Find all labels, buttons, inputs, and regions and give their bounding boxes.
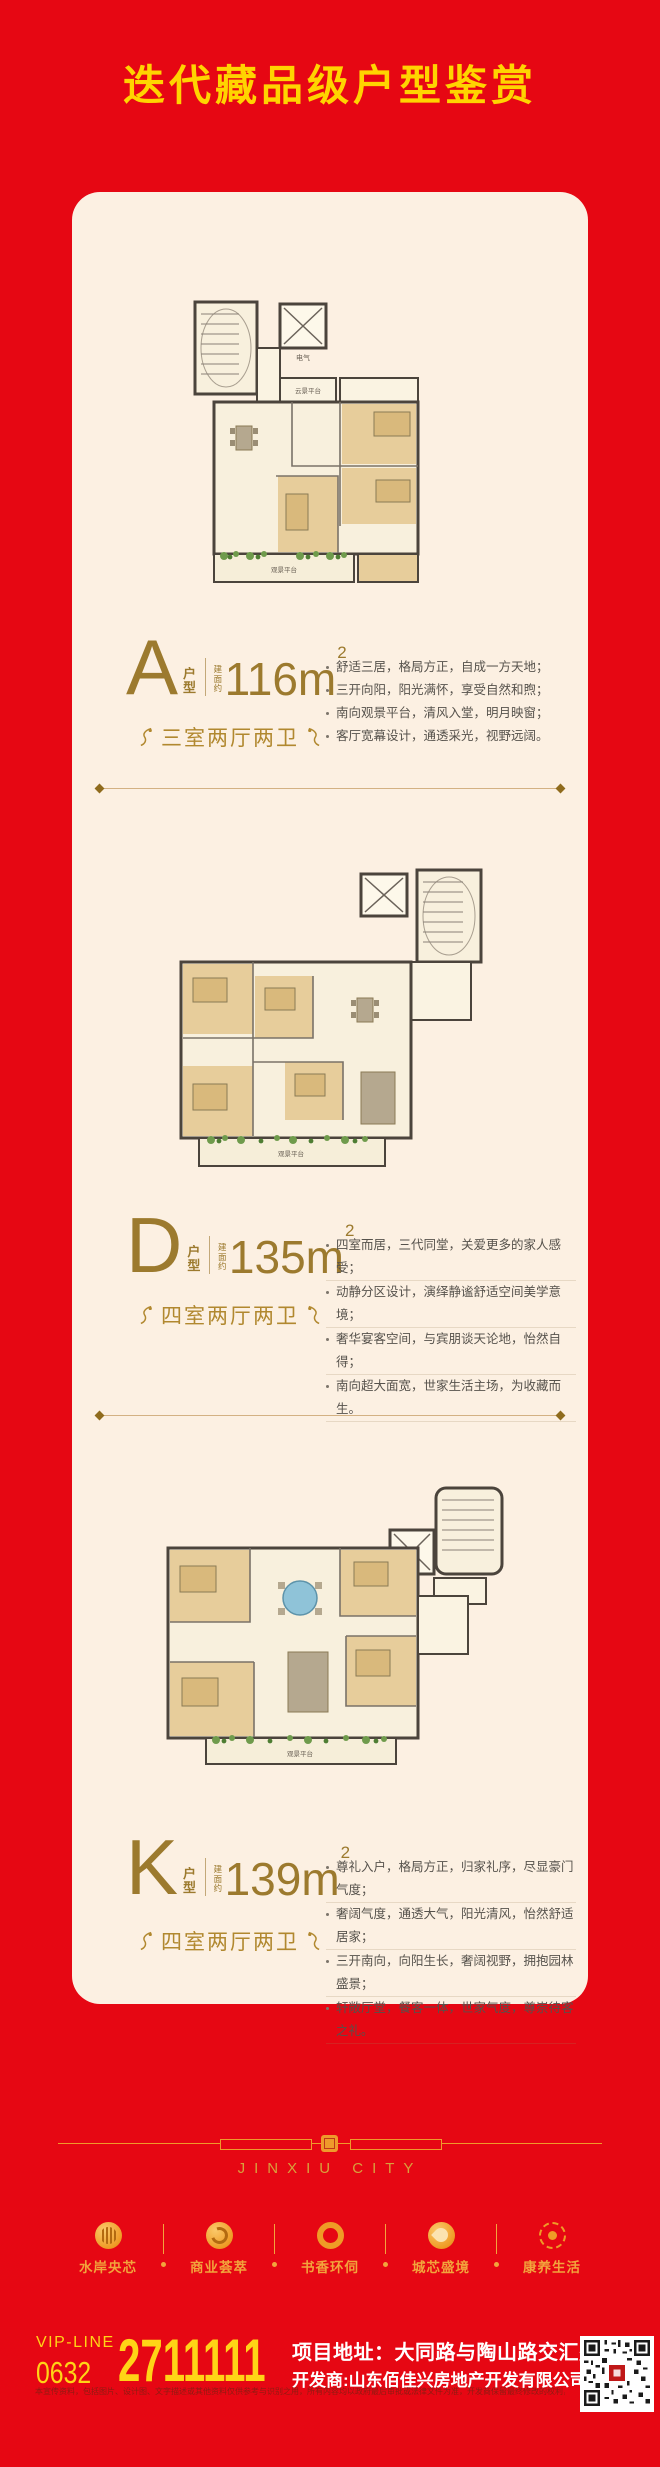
book-icon [317, 2222, 344, 2249]
phone-number: 2711111 [118, 2326, 266, 2395]
bullet-dot [326, 666, 329, 669]
feature-separator [274, 2224, 275, 2254]
feature-label: 水岸央芯 [67, 2256, 149, 2276]
floorplan-d-image: 观景平台 [165, 866, 495, 1181]
feature-label: 商业荟萃 [178, 2256, 260, 2276]
unit-k-area-prefix: 建面约 [214, 1865, 223, 1894]
feature-separator [496, 2224, 497, 2254]
feature-item-health: 康养生活 [511, 2222, 593, 2276]
bullet-text: 客厅宽幕设计，通透采光，视野远阔。 [336, 725, 549, 748]
ornament-bracket-right-icon [306, 726, 321, 748]
unit-a-layout-label: 三室两厅两卫 [100, 722, 360, 752]
bullet-item: 三开南向，向阳生长，奢阔视野，拥抱园林盛景； [326, 1950, 576, 1997]
bullet-dot [326, 712, 329, 715]
plan-a-balcony-label: 云景平台 [295, 386, 321, 395]
unit-d-layout-text: 四室两厅两卫 [161, 1300, 299, 1330]
unit-k-layout-label: 四室两厅两卫 [100, 1926, 360, 1956]
feature-item-book: 书香环伺 [289, 2222, 371, 2276]
bullet-item: 奢华宴客空间，与宾朋谈天论地，怡然自得； [326, 1328, 576, 1375]
vip-line-label: VIP-LINE [36, 2334, 115, 2352]
bullet-text: 轩敞厅堂，餐客一体，世家气度，尊崇待客之礼。 [336, 1997, 576, 2043]
feature-row: 水岸央芯 商业荟萃 书香环伺 城芯盛境 康养生活 [0, 2222, 660, 2276]
vertical-divider [205, 1858, 206, 1896]
unit-d-type-label: 户型 [187, 1245, 201, 1274]
vertical-divider [209, 1236, 210, 1274]
water-icon [95, 2222, 122, 2249]
feature-label: 城芯盛境 [400, 2256, 482, 2276]
unit-k-layout-text: 四室两厅两卫 [161, 1926, 299, 1956]
bullet-dot [326, 689, 329, 692]
ornament-bracket-right-icon [306, 1930, 321, 1952]
unit-d-info: D 户型 建面约 135m2 四室两厅两卫 四室而居，三代同堂，关爱更多的家人感… [100, 1208, 570, 1348]
unit-k-bullets: 尊礼入户，格局方正，归家礼序，尽显豪门气度； 奢阔气度，通透大气，阳光清风，怡然… [326, 1856, 576, 2044]
bullet-text: 奢阔气度，通透大气，阳光清风，怡然舒适居家； [336, 1903, 576, 1949]
bullet-dot [326, 1913, 329, 1916]
plan-a-terrace-label: 观景平台 [271, 565, 297, 574]
section-divider [96, 784, 564, 793]
bullet-dot [326, 1338, 329, 1341]
feature-separator [385, 2224, 386, 2254]
unit-k-info: K 户型 建面约 139m2 四室两厅两卫 尊礼入户，格局方正，归家礼序，尽显豪… [100, 1830, 570, 1970]
plan-d-terrace-label: 观景平台 [278, 1149, 304, 1158]
unit-d-header: D 户型 建面约 135m2 [126, 1214, 353, 1278]
unit-a-layout-text: 三室两厅两卫 [161, 722, 299, 752]
area-code: 0632 [36, 2355, 99, 2391]
qr-code [580, 2336, 654, 2412]
bullet-item: 轩敞厅堂，餐客一体，世家气度，尊崇待客之礼。 [326, 1997, 576, 2044]
unit-a-letter: A [126, 636, 178, 700]
unit-d-area-prefix: 建面约 [218, 1243, 227, 1272]
bullet-text: 四室而居，三代同堂，关爱更多的家人感受； [336, 1234, 576, 1280]
bullet-item: 舒适三居，格局方正，自成一方天地； [326, 656, 576, 679]
vip-line-block: VIP-LINE 0632 [36, 2334, 115, 2391]
bullet-dot [326, 2007, 329, 2010]
business-icon [206, 2222, 233, 2249]
bullet-item: 三开向阳，阳光满怀，享受自然和煦； [326, 679, 576, 702]
unit-k-type-label: 户型 [183, 1867, 197, 1896]
bullet-item: 动静分区设计，演绎静谧舒适空间美学意境； [326, 1281, 576, 1328]
bullet-item: 尊礼入户，格局方正，归家礼序，尽显豪门气度； [326, 1856, 576, 1903]
unit-a-info: A 户型 建面约 116m2 三室两厅两卫 舒适三居，格局方正，自成一方天地； … [100, 630, 570, 770]
unit-d-letter: D [126, 1214, 182, 1278]
feature-item-business: 商业荟萃 [178, 2222, 260, 2276]
bullet-item: 奢阔气度，通透大气，阳光清风，怡然舒适居家； [326, 1903, 576, 1950]
ornament-bracket-left-icon [139, 1930, 154, 1952]
vertical-divider [205, 658, 206, 696]
feature-item-city: 城芯盛境 [400, 2222, 482, 2276]
disclaimer-text: 本宣传资料，包括图片、设计图、文字描述或其他资料仅供参考与识别之用，所有内容均以… [35, 2387, 565, 2397]
unit-a-area-prefix: 建面约 [214, 665, 223, 694]
health-icon [539, 2222, 566, 2249]
bullet-item: 客厅宽幕设计，通透采光，视野远阔。 [326, 725, 576, 748]
unit-k-letter: K [126, 1836, 178, 1900]
unit-d-bullets: 四室而居，三代同堂，关爱更多的家人感受； 动静分区设计，演绎静谧舒适空间美学意境… [326, 1234, 576, 1422]
feature-separator [163, 2224, 164, 2254]
feature-label: 康养生活 [511, 2256, 593, 2276]
poster-background: 迭代藏品级户型鉴赏 电气 云景平台 观景平台 A 户型 [0, 0, 660, 2467]
feature-label: 书香环伺 [289, 2256, 371, 2276]
plan-a-elec-label: 电气 [296, 353, 310, 362]
brand-name: JINXIU CITY [0, 2160, 660, 2177]
unit-a-bullets: 舒适三居，格局方正，自成一方天地； 三开向阳，阳光满怀，享受自然和煦； 南向观景… [326, 656, 576, 748]
unit-k-header: K 户型 建面约 139m2 [126, 1836, 349, 1900]
page-title: 迭代藏品级户型鉴赏 [0, 52, 660, 113]
bullet-text: 三开南向，向阳生长，奢阔视野，拥抱园林盛景； [336, 1950, 576, 1996]
bullet-text: 尊礼入户，格局方正，归家礼序，尽显豪门气度； [336, 1856, 576, 1902]
bullet-dot [326, 1244, 329, 1247]
feature-item-water: 水岸央芯 [67, 2222, 149, 2276]
bullet-text: 舒适三居，格局方正，自成一方天地； [336, 656, 549, 679]
unit-a-header: A 户型 建面约 116m2 [126, 636, 346, 700]
ornament-bracket-left-icon [139, 1304, 154, 1326]
unit-a-area-value: 116m [225, 653, 337, 705]
unit-d-layout-label: 四室两厅两卫 [100, 1300, 360, 1330]
ornament-bracket-right-icon [306, 1304, 321, 1326]
unit-a-type-label: 户型 [183, 667, 197, 696]
bullet-text: 南向观景平台，清风入堂，明月映窗； [336, 702, 549, 725]
ornament-bracket-left-icon [139, 726, 154, 748]
bullet-text: 奢华宴客空间，与宾朋谈天论地，怡然自得； [336, 1328, 576, 1374]
bullet-dot [326, 735, 329, 738]
footer-ornament [0, 2135, 660, 2153]
section-divider [96, 1411, 564, 1420]
bullet-dot [326, 1866, 329, 1869]
brand-seal-icon [321, 2135, 338, 2152]
floorplan-a-image: 电气 云景平台 观景平台 [180, 298, 480, 598]
unit-k-area-value: 139m [225, 1853, 340, 1905]
bullet-dot [326, 1291, 329, 1294]
bullet-dot [326, 1960, 329, 1963]
bullet-item: 四室而居，三代同堂，关爱更多的家人感受； [326, 1234, 576, 1281]
city-icon [428, 2222, 455, 2249]
bullet-dot [326, 1385, 329, 1388]
bullet-text: 三开向阳，阳光满怀，享受自然和煦； [336, 679, 549, 702]
bullet-item: 南向观景平台，清风入堂，明月映窗； [326, 702, 576, 725]
address-line1: 项目地址：大同路与陶山路交汇处 [292, 2336, 600, 2365]
plan-k-terrace-label: 观景平台 [287, 1749, 313, 1758]
floorplan-k-image: 观景平台 [150, 1486, 510, 1766]
bullet-text: 动静分区设计，演绎静谧舒适空间美学意境； [336, 1281, 576, 1327]
